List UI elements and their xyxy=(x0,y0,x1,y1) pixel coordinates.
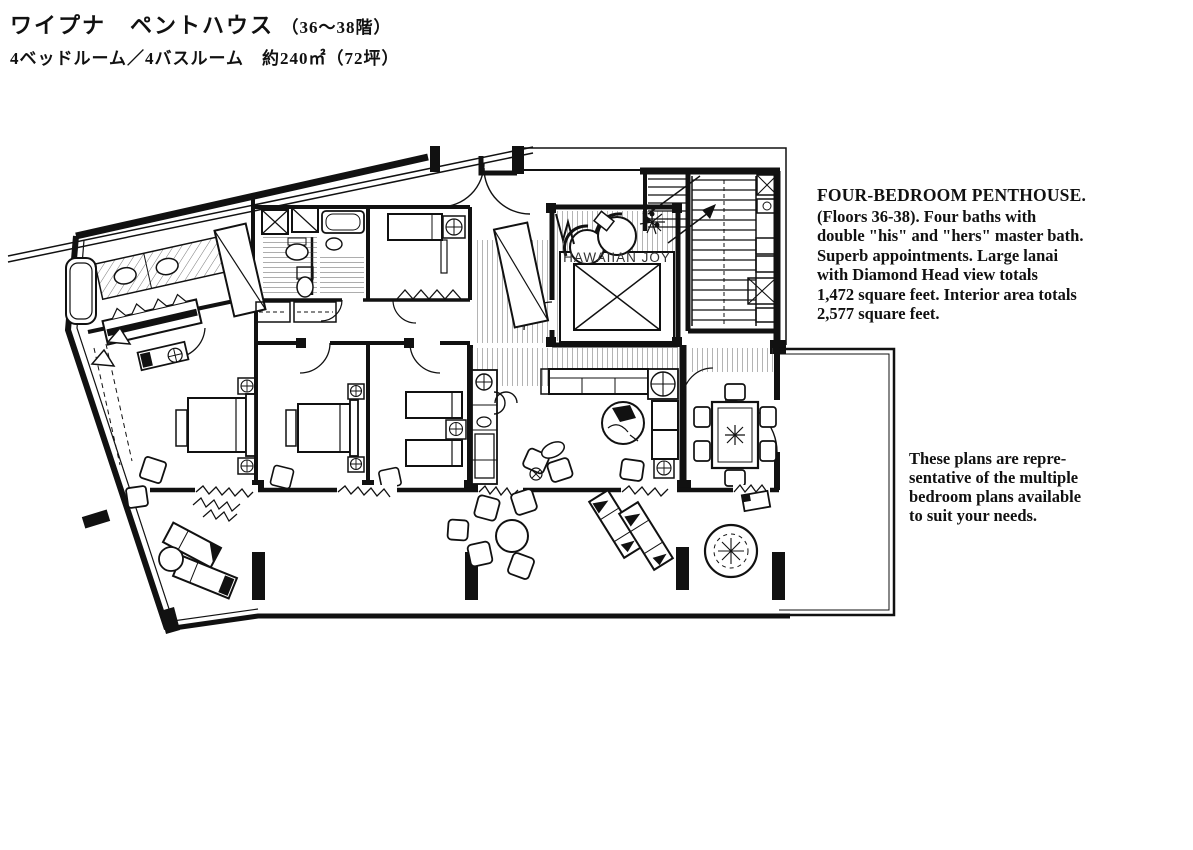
bench xyxy=(286,410,296,446)
dining-room xyxy=(694,384,776,486)
centerpiece xyxy=(725,425,745,445)
shaft-boxes xyxy=(748,175,777,322)
master-suite xyxy=(92,291,256,474)
chair xyxy=(270,465,294,489)
armchair xyxy=(652,401,678,430)
spa-label: HAWAIIAN JOY xyxy=(563,250,671,265)
chair xyxy=(447,519,468,540)
description-heading: FOUR-BEDROOM PENTHOUSE. xyxy=(817,186,1189,206)
planter xyxy=(193,498,240,511)
side-table xyxy=(159,547,183,571)
bedroom-two xyxy=(270,384,364,489)
chair xyxy=(126,486,149,509)
sofa xyxy=(549,369,648,394)
sink xyxy=(286,244,308,260)
chair xyxy=(467,541,493,567)
side-console xyxy=(138,342,189,370)
chair xyxy=(546,457,573,483)
bath-two xyxy=(262,208,364,297)
description-body: (Floors 36-38). Four baths with double "… xyxy=(817,207,1189,324)
small-table xyxy=(742,491,770,511)
umbrella-table xyxy=(705,525,757,577)
round-table xyxy=(496,520,528,552)
page-title-text: ワイプナ ペントハウス xyxy=(10,13,274,38)
kitchen xyxy=(472,370,517,484)
chair xyxy=(139,456,167,484)
bed xyxy=(298,404,350,452)
sink xyxy=(326,238,342,250)
toilet xyxy=(297,277,313,297)
twin-bed xyxy=(406,392,462,418)
lanai-table-set xyxy=(447,488,538,580)
bench xyxy=(176,410,187,446)
hall-closets xyxy=(256,302,336,322)
living-room xyxy=(522,369,678,483)
page-subtitle: 4ベッドルーム／4バスルーム 約240㎡（72坪） xyxy=(10,44,399,69)
chair xyxy=(507,552,535,580)
twin-bed xyxy=(406,440,462,466)
description-block: FOUR-BEDROOM PENTHOUSE. (Floors 36-38). … xyxy=(817,186,1189,324)
floor-plan: HAWAIIAN JOY xyxy=(0,0,1193,845)
page-title-floors: （36〜38階） xyxy=(282,18,392,37)
closet-chevrons xyxy=(397,290,461,299)
chair xyxy=(474,495,501,522)
stool xyxy=(495,392,517,403)
bedroom-three xyxy=(378,392,466,489)
bed xyxy=(188,398,246,452)
note-text: These plans are repre- sentative of the … xyxy=(909,449,1139,525)
bed xyxy=(388,214,442,240)
armchair xyxy=(652,430,678,459)
chair xyxy=(620,459,645,482)
bedroom-four xyxy=(388,214,465,299)
page-title: ワイプナ ペントハウス （36〜38階） xyxy=(10,8,392,40)
